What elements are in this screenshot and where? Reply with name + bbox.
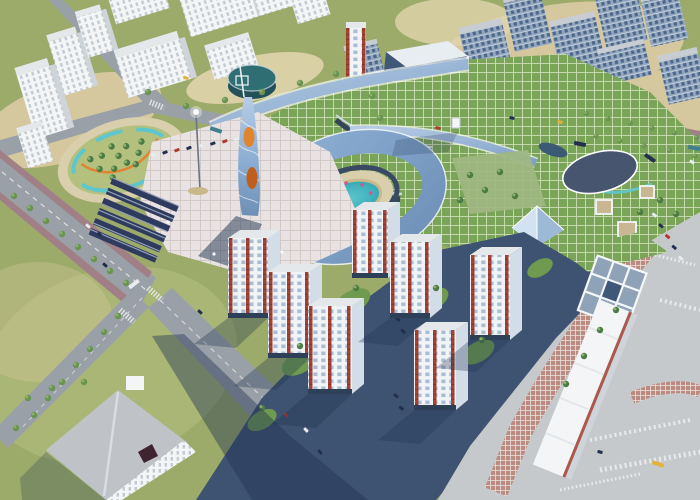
residential-tower bbox=[470, 247, 522, 340]
residential-tower bbox=[308, 298, 364, 394]
spiral-orange-band bbox=[247, 167, 258, 189]
rooftop-cabin bbox=[126, 376, 144, 390]
aerial-render bbox=[0, 0, 700, 500]
spiral-orange-band bbox=[244, 127, 255, 147]
render-canvas bbox=[0, 0, 700, 500]
mast-light bbox=[193, 109, 199, 115]
residential-tower bbox=[390, 234, 442, 318]
